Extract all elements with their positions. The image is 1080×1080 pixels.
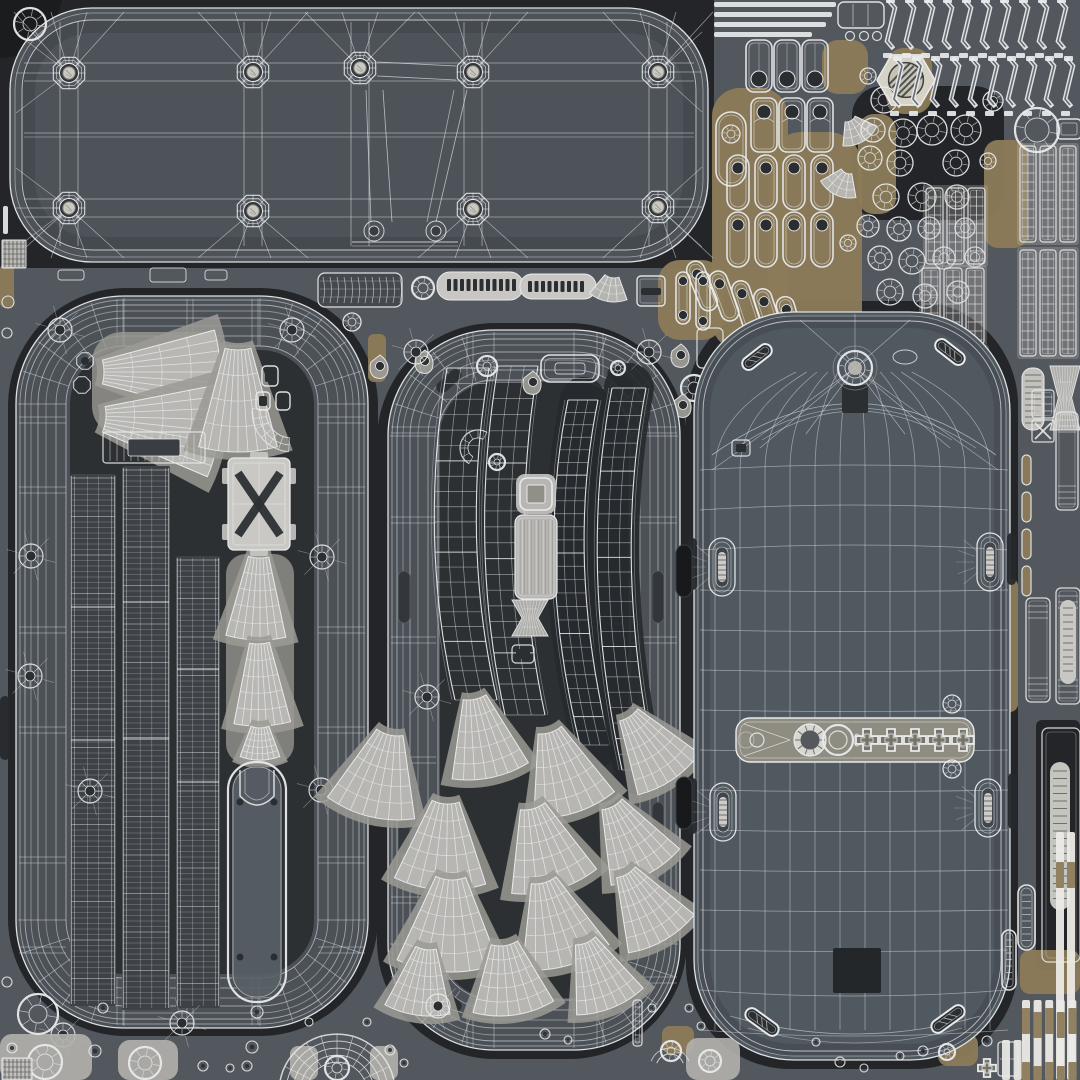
left-frame-island xyxy=(6,296,368,1059)
top-plate-island xyxy=(0,0,713,282)
uv-atlas-canvas xyxy=(0,0,1080,1080)
uv-texture-atlas xyxy=(0,0,1080,1080)
right-shell-island xyxy=(676,312,1017,1060)
atlas-svg xyxy=(0,0,1080,1080)
